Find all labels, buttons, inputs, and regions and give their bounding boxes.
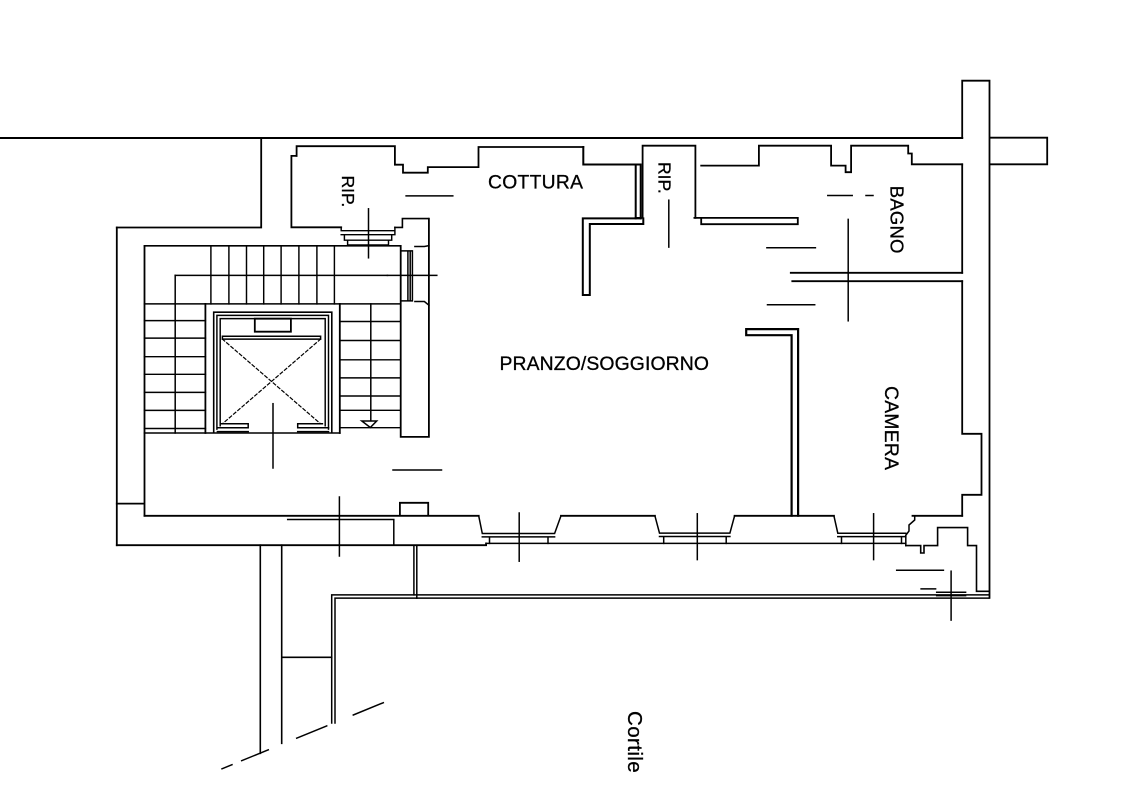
svg-text:PRANZO/SOGGIORNO: PRANZO/SOGGIORNO (500, 353, 710, 375)
svg-text:BAGNO: BAGNO (886, 186, 907, 254)
svg-text:RIP.: RIP. (338, 176, 358, 208)
svg-text:RIP.: RIP. (655, 162, 675, 194)
svg-text:Cortile: Cortile (623, 711, 646, 773)
svg-text:CAMERA: CAMERA (880, 386, 901, 470)
svg-text:COTTURA: COTTURA (488, 173, 583, 194)
